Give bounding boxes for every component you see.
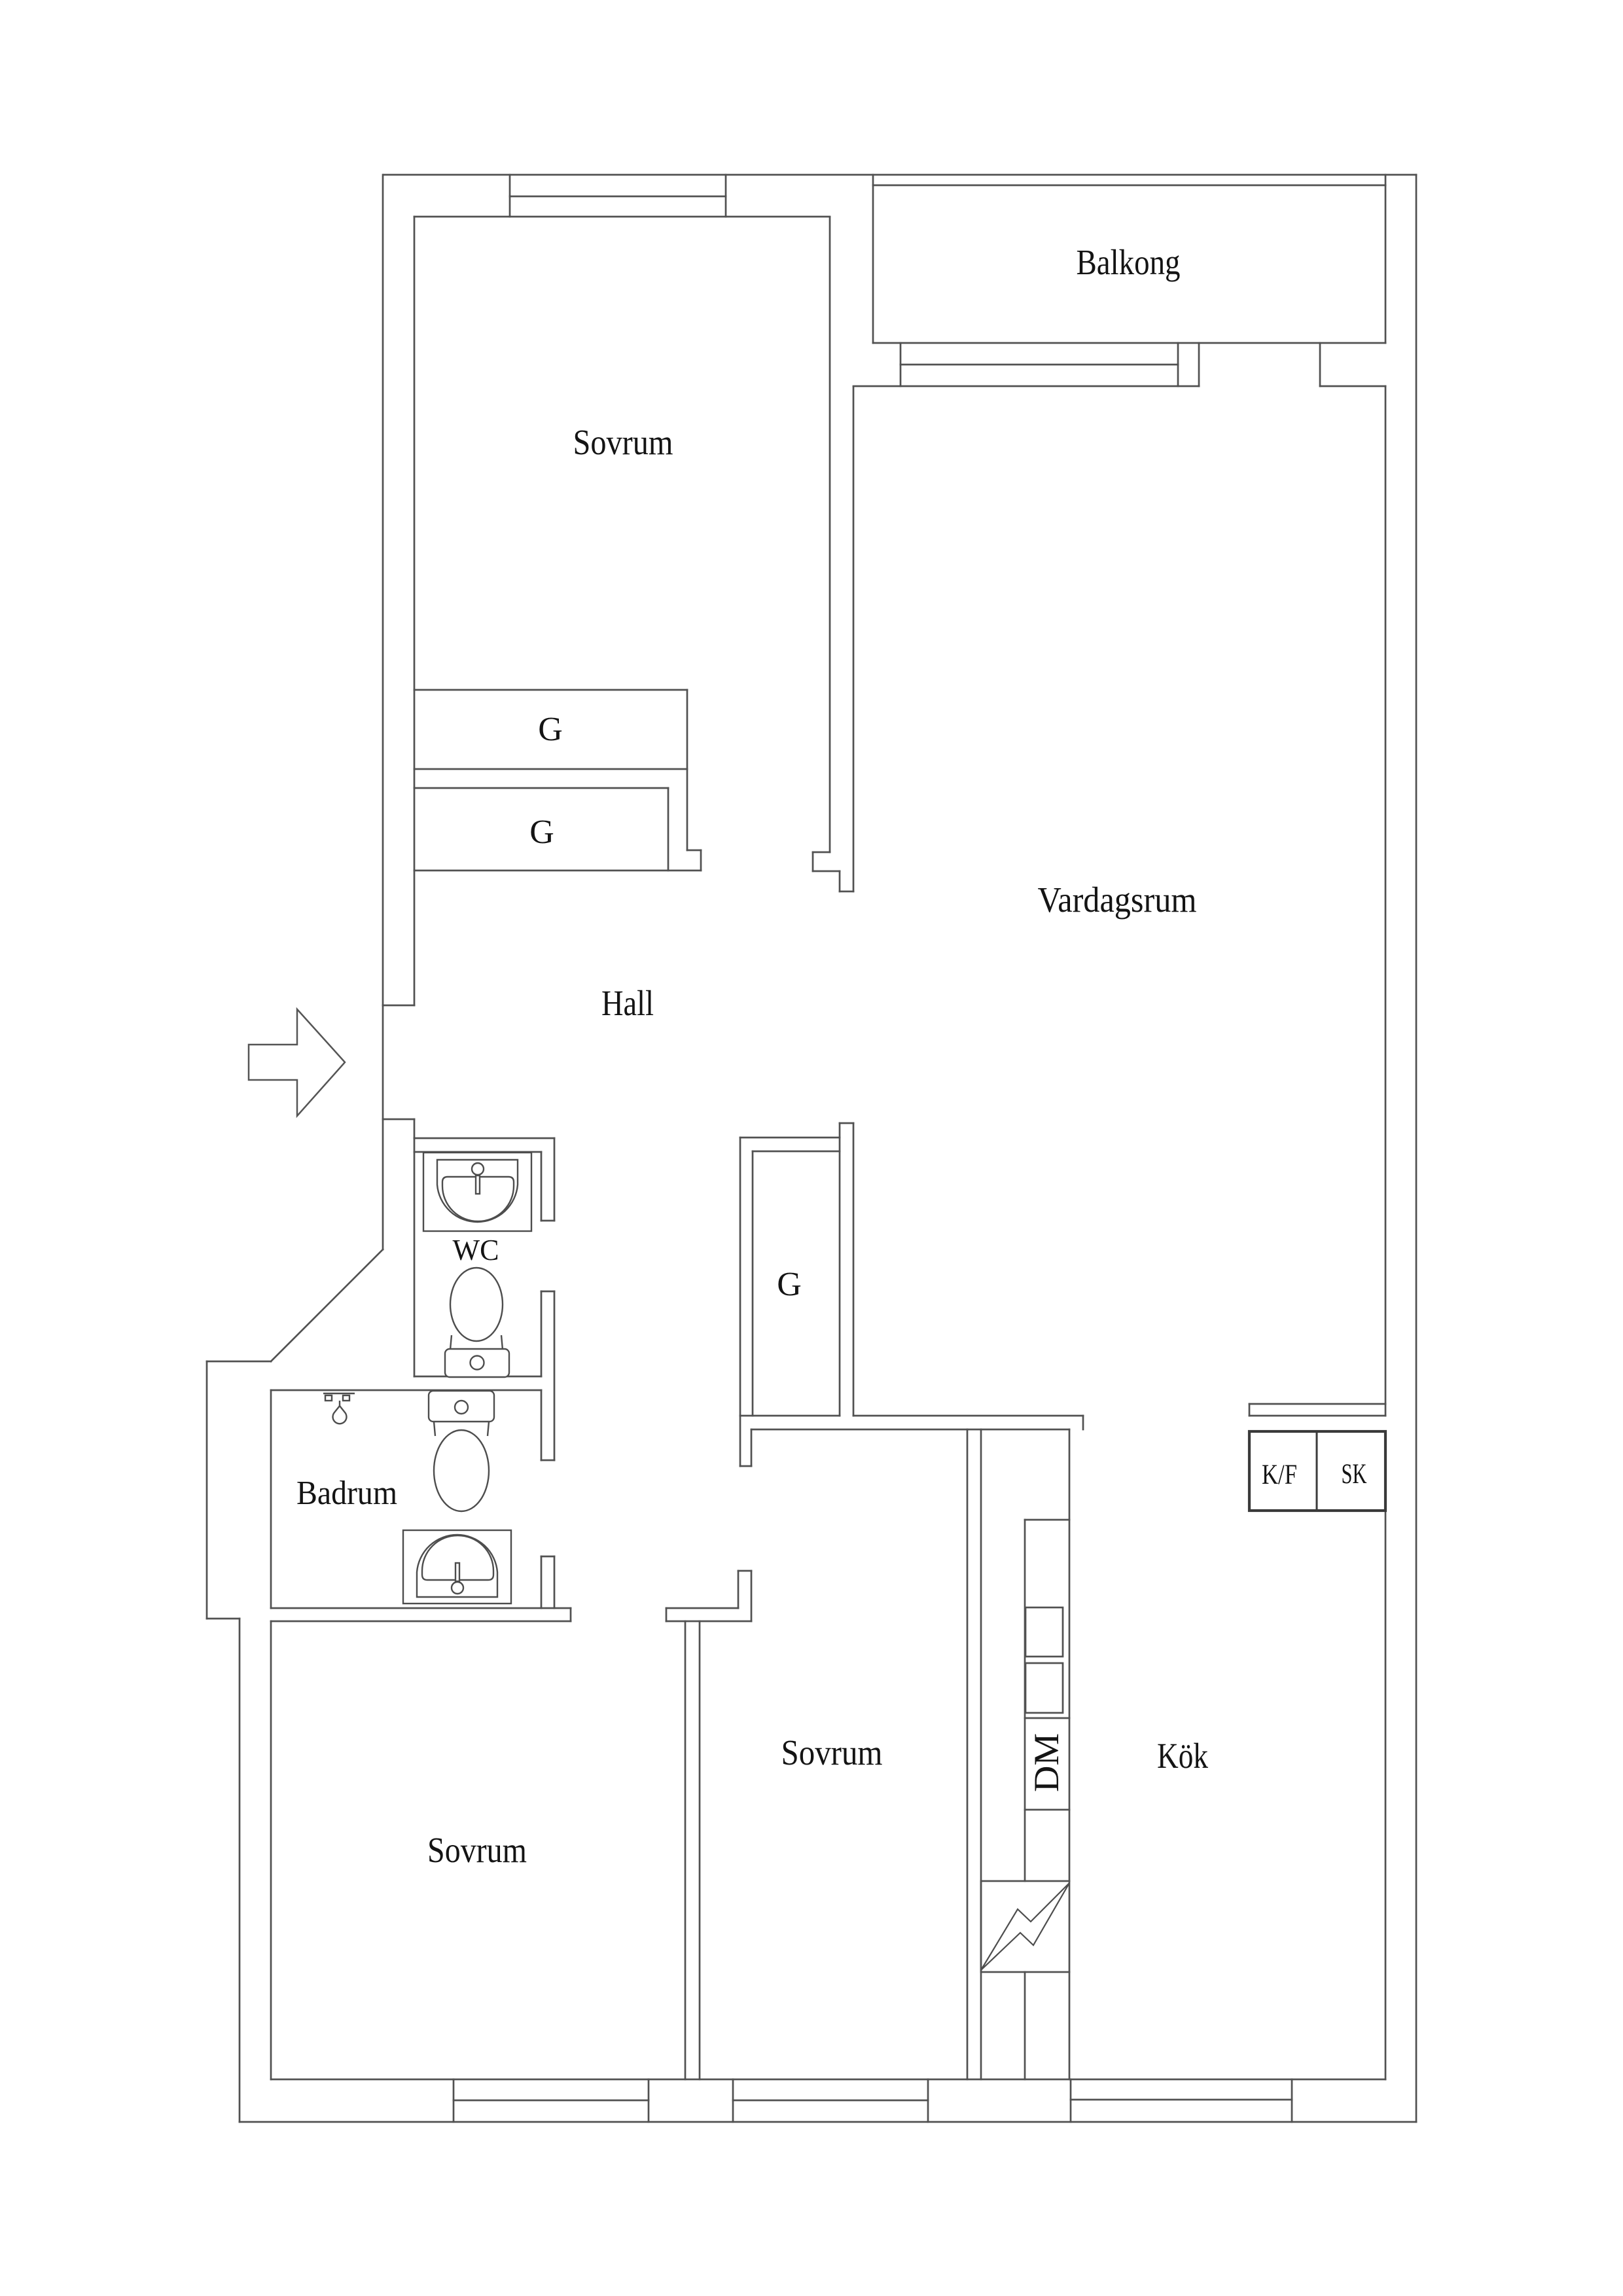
svg-text:Hall: Hall xyxy=(601,983,654,1023)
svg-text:Kök: Kök xyxy=(1157,1736,1208,1776)
svg-text:K/F: K/F xyxy=(1262,1460,1297,1490)
svg-text:Sovrum: Sovrum xyxy=(573,422,673,462)
svg-text:G: G xyxy=(529,814,554,851)
svg-text:Sovrum: Sovrum xyxy=(427,1830,527,1870)
svg-text:WC: WC xyxy=(453,1234,499,1266)
svg-text:Badrum: Badrum xyxy=(296,1475,397,1512)
svg-text:Balkong: Balkong xyxy=(1077,242,1181,282)
svg-text:SK: SK xyxy=(1342,1459,1367,1490)
svg-text:G: G xyxy=(777,1266,802,1303)
svg-text:Vardagsrum: Vardagsrum xyxy=(1038,880,1197,920)
svg-text:Sovrum: Sovrum xyxy=(781,1732,883,1772)
svg-text:DM: DM xyxy=(1027,1733,1066,1792)
svg-text:G: G xyxy=(538,711,563,748)
